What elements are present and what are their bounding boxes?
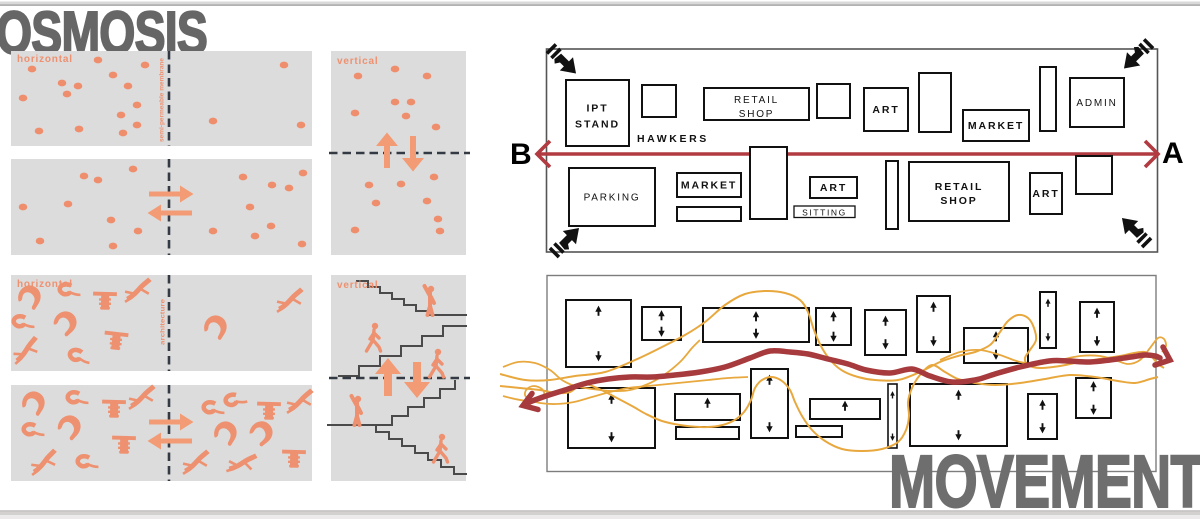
- svg-text:SHOP: SHOP: [940, 195, 977, 207]
- svg-text:ART: ART: [872, 104, 899, 116]
- svg-text:A: A: [1162, 137, 1184, 170]
- svg-text:vertical: vertical: [337, 280, 378, 291]
- svg-text:STAND: STAND: [575, 119, 620, 131]
- svg-text:vertical: vertical: [337, 56, 378, 67]
- svg-text:horizontal: horizontal: [17, 279, 73, 290]
- svg-text:IPT: IPT: [586, 103, 608, 115]
- svg-text:B: B: [510, 138, 532, 171]
- svg-text:MARKET: MARKET: [968, 120, 1024, 132]
- svg-text:ADMIN: ADMIN: [1076, 98, 1117, 109]
- svg-text:semi-permeable membrane: semi-permeable membrane: [159, 58, 166, 142]
- svg-text:SHOP: SHOP: [739, 109, 775, 120]
- svg-text:MARKET: MARKET: [681, 180, 737, 192]
- svg-text:SITTING: SITTING: [802, 207, 847, 217]
- svg-text:PARKING: PARKING: [584, 193, 641, 204]
- svg-text:ART: ART: [1032, 188, 1059, 200]
- svg-text:RETAIL: RETAIL: [734, 95, 779, 106]
- svg-text:architecture: architecture: [160, 299, 167, 345]
- svg-text:MOVEMENT: MOVEMENT: [889, 440, 1200, 519]
- svg-text:RETAIL: RETAIL: [935, 181, 984, 193]
- svg-text:ART: ART: [820, 182, 847, 194]
- svg-text:HAWKERS: HAWKERS: [637, 133, 709, 145]
- svg-text:horizontal: horizontal: [17, 54, 73, 65]
